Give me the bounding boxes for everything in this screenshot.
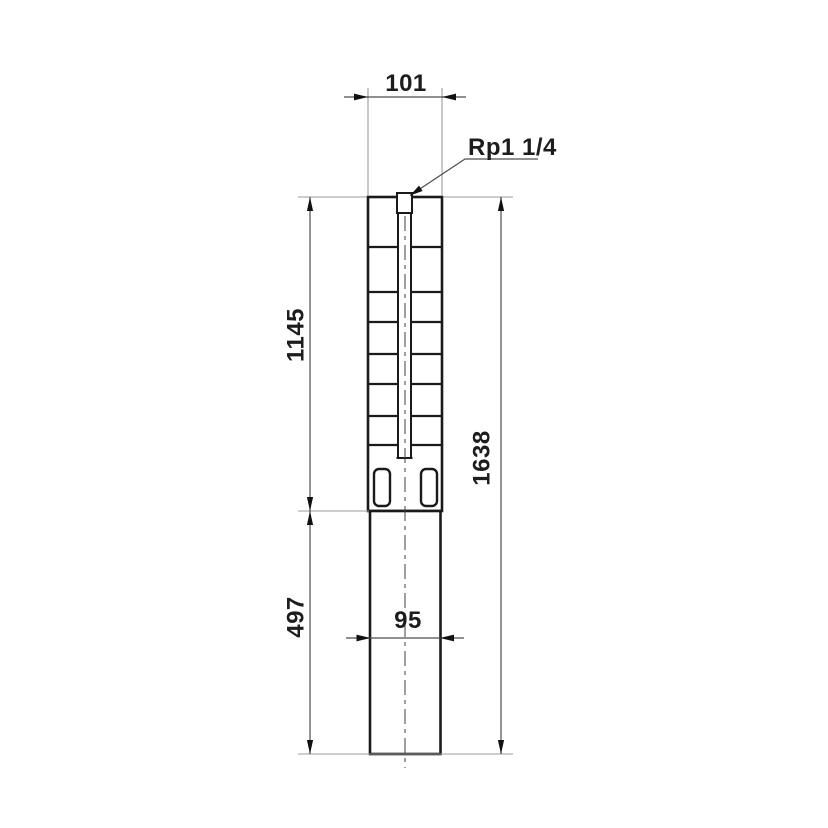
dim-motor-width-label: 95 [394, 607, 422, 634]
dimension-upper-height: 1145 [283, 197, 314, 511]
port-callout: Rp1 1/4 [410, 134, 557, 196]
arrowhead [498, 740, 504, 754]
arrowhead [307, 197, 313, 211]
arrowhead [307, 497, 313, 511]
dim-top-width-label: 101 [385, 70, 427, 97]
leader-arrowhead [410, 186, 423, 196]
dimension-lower-height: 497 [283, 511, 314, 754]
arrowhead [442, 94, 456, 101]
port-thread-label: Rp1 1/4 [468, 134, 557, 161]
inlet-slot-left [374, 469, 390, 506]
drawing-canvas: 101 Rp1 1/4 1145 497 1638 [0, 0, 828, 828]
arrowhead [354, 94, 368, 101]
arrowhead [498, 197, 504, 211]
dim-upper-height-label: 1145 [283, 308, 310, 362]
dimension-top-width: 101 [344, 70, 466, 100]
port-boss [397, 193, 412, 213]
leader-line [410, 159, 538, 196]
pump-dimension-drawing: 101 Rp1 1/4 1145 497 1638 [0, 0, 828, 828]
arrowhead [357, 635, 371, 642]
inlet-slot-right [421, 469, 437, 506]
dim-total-height-label: 1638 [469, 430, 496, 485]
arrowhead [307, 511, 313, 525]
arrowhead [440, 635, 454, 642]
arrowhead [307, 740, 313, 754]
dimension-total-height: 1638 [469, 197, 505, 754]
dim-lower-height-label: 497 [283, 596, 310, 638]
